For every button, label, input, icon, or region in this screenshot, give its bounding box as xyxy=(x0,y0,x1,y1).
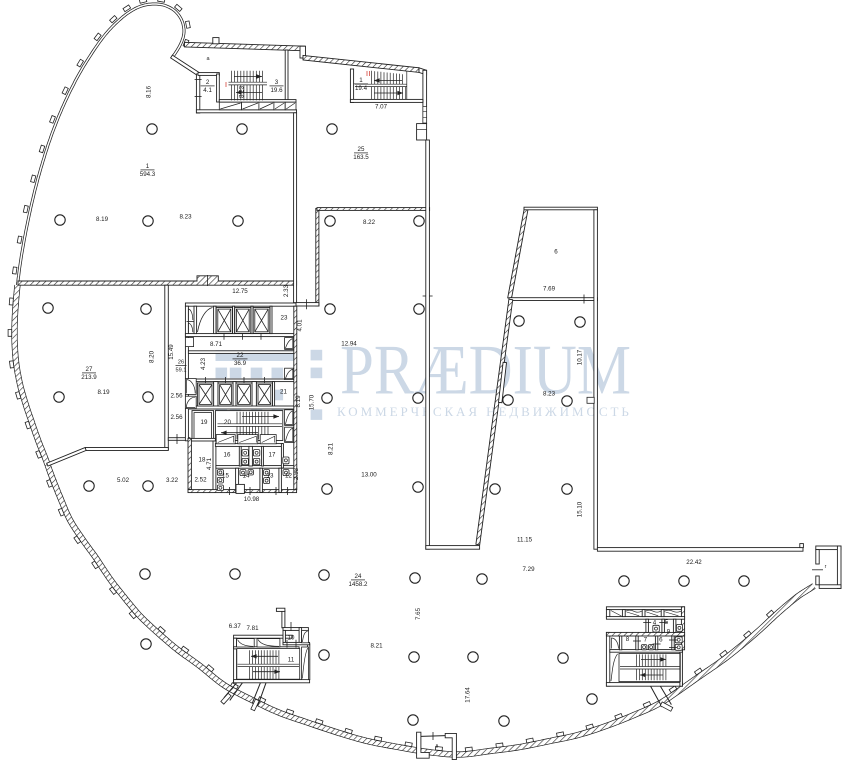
svg-text:15.49: 15.49 xyxy=(168,344,175,360)
svg-text:1458.2: 1458.2 xyxy=(349,581,368,588)
svg-text:36.9: 36.9 xyxy=(234,360,247,367)
svg-text:6.37: 6.37 xyxy=(229,623,242,630)
svg-text:8.23: 8.23 xyxy=(543,391,556,398)
svg-text:213.9: 213.9 xyxy=(81,374,97,381)
svg-text:14: 14 xyxy=(243,473,250,480)
svg-text:19.4: 19.4 xyxy=(355,85,368,92)
svg-text:II: II xyxy=(366,69,371,78)
svg-text:2.56: 2.56 xyxy=(170,393,183,400)
svg-text:19.6: 19.6 xyxy=(270,87,283,94)
svg-text:11: 11 xyxy=(288,657,295,664)
svg-text:10.98: 10.98 xyxy=(244,496,260,503)
svg-text:7.07: 7.07 xyxy=(375,104,388,111)
svg-text:8.21: 8.21 xyxy=(370,643,383,650)
svg-text:6: 6 xyxy=(554,249,558,256)
svg-text:8.21: 8.21 xyxy=(328,442,335,455)
svg-text:6: 6 xyxy=(659,637,663,644)
svg-text:8.22: 8.22 xyxy=(363,219,376,226)
svg-text:27: 27 xyxy=(86,366,93,373)
svg-text:10: 10 xyxy=(288,635,295,642)
svg-text:4.71: 4.71 xyxy=(206,457,213,470)
svg-text:2.53: 2.53 xyxy=(293,467,300,480)
svg-text:8.19: 8.19 xyxy=(96,216,109,223)
svg-text:4.01: 4.01 xyxy=(297,319,304,332)
svg-text:12.94: 12.94 xyxy=(341,341,357,348)
svg-text:20: 20 xyxy=(224,419,231,426)
svg-text:8.71: 8.71 xyxy=(210,341,223,348)
svg-text:15: 15 xyxy=(222,473,229,480)
svg-text:8.23: 8.23 xyxy=(239,85,246,98)
svg-text:12: 12 xyxy=(285,473,292,480)
svg-text:7: 7 xyxy=(644,637,648,644)
svg-text:4: 4 xyxy=(653,620,657,627)
svg-text:15.10: 15.10 xyxy=(577,501,584,517)
svg-text:8: 8 xyxy=(626,636,630,643)
svg-text:9: 9 xyxy=(667,629,671,636)
svg-text:13.00: 13.00 xyxy=(361,472,377,479)
svg-text:22: 22 xyxy=(237,352,244,359)
svg-text:3: 3 xyxy=(275,79,279,86)
svg-text:1: 1 xyxy=(359,77,363,84)
svg-text:2.33: 2.33 xyxy=(283,284,290,297)
svg-text:2.52: 2.52 xyxy=(194,477,207,484)
svg-text:7.29: 7.29 xyxy=(522,566,535,573)
svg-text:13: 13 xyxy=(267,473,274,480)
svg-text:7.81: 7.81 xyxy=(246,625,259,632)
svg-text:22.42: 22.42 xyxy=(686,559,702,566)
svg-text:2: 2 xyxy=(206,79,210,86)
svg-text:8.19: 8.19 xyxy=(295,395,302,408)
svg-text:26: 26 xyxy=(178,360,184,366)
svg-text:г: г xyxy=(825,564,827,570)
svg-text:КОММЕРЧЕСКАЯ НЕДВИЖИМОСТЬ: КОММЕРЧЕСКАЯ НЕДВИЖИМОСТЬ xyxy=(337,404,632,419)
svg-text:594.3: 594.3 xyxy=(140,171,156,178)
svg-text:25: 25 xyxy=(358,146,365,153)
svg-text:3.22: 3.22 xyxy=(166,477,179,484)
svg-text:7.69: 7.69 xyxy=(543,286,556,293)
svg-text:19: 19 xyxy=(201,419,208,426)
svg-text:8.20: 8.20 xyxy=(149,350,156,363)
svg-text:11.15: 11.15 xyxy=(517,537,533,544)
svg-text:163.5: 163.5 xyxy=(353,154,369,161)
svg-text:10.17: 10.17 xyxy=(577,349,584,365)
svg-text:8.16: 8.16 xyxy=(146,85,153,98)
svg-text:16: 16 xyxy=(224,452,231,459)
svg-text:17.64: 17.64 xyxy=(465,687,472,703)
svg-text:12.75: 12.75 xyxy=(232,288,248,295)
svg-text:59.1: 59.1 xyxy=(176,368,187,374)
svg-text:2.56: 2.56 xyxy=(170,414,183,421)
svg-text:5.02: 5.02 xyxy=(117,477,130,484)
svg-text:8.23: 8.23 xyxy=(179,214,192,221)
svg-text:23: 23 xyxy=(281,315,288,322)
svg-text:в: в xyxy=(436,744,439,750)
svg-text:8.19: 8.19 xyxy=(97,389,110,396)
svg-text:4.1: 4.1 xyxy=(203,87,212,94)
svg-text:24: 24 xyxy=(355,573,362,580)
svg-text:21: 21 xyxy=(280,389,287,396)
svg-text:1: 1 xyxy=(146,163,150,170)
svg-text:17: 17 xyxy=(269,452,276,459)
svg-text:7.65: 7.65 xyxy=(415,607,422,620)
svg-text:I: I xyxy=(225,80,227,89)
svg-text:4.23: 4.23 xyxy=(200,357,207,370)
svg-text:15.70: 15.70 xyxy=(309,394,316,410)
